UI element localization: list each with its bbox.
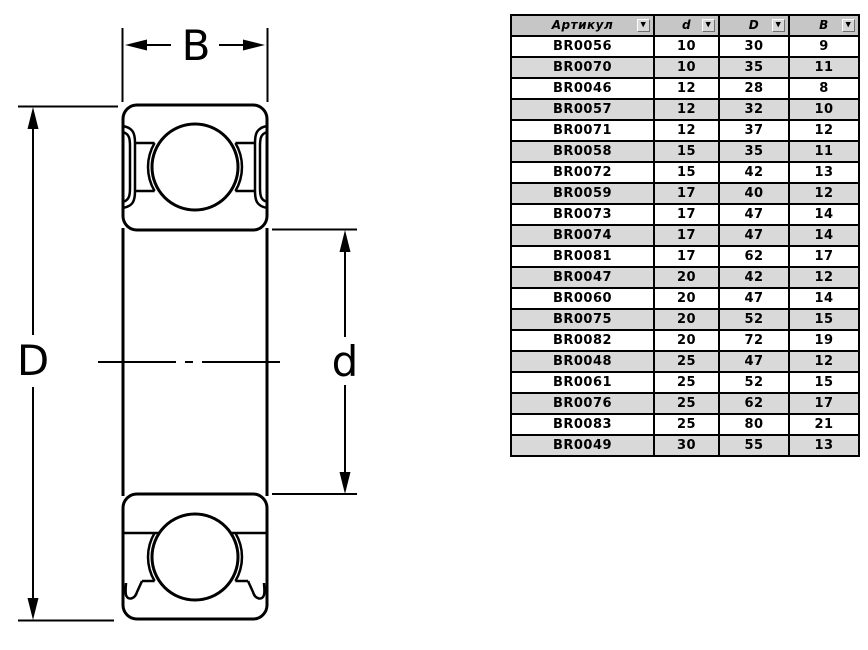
cell-d: 17 <box>654 183 719 204</box>
table-row: BR0074 17 47 14 <box>511 225 859 246</box>
dimension-label-D: D <box>17 336 49 385</box>
cell-article: BR0056 <box>511 36 654 57</box>
col-header-article: Артикул ▼ <box>511 15 654 36</box>
cell-d: 20 <box>654 267 719 288</box>
cell-article: BR0046 <box>511 78 654 99</box>
table-row: BR0057 12 32 10 <box>511 99 859 120</box>
col-header-D: D ▼ <box>719 15 789 36</box>
col-header-D-label: D <box>749 18 759 32</box>
cell-d: 10 <box>654 36 719 57</box>
cell-D: 52 <box>719 372 789 393</box>
cell-B: 21 <box>789 414 859 435</box>
cell-d: 25 <box>654 393 719 414</box>
cell-article: BR0049 <box>511 435 654 456</box>
table-row: BR0060 20 47 14 <box>511 288 859 309</box>
cell-article: BR0076 <box>511 393 654 414</box>
dimension-label-d: d <box>332 337 359 386</box>
cell-d: 17 <box>654 246 719 267</box>
table-row: BR0073 17 47 14 <box>511 204 859 225</box>
cell-d: 15 <box>654 162 719 183</box>
cell-d: 15 <box>654 141 719 162</box>
cell-B: 17 <box>789 246 859 267</box>
cell-D: 35 <box>719 57 789 78</box>
arrow-right-icon <box>243 40 265 51</box>
ball-top <box>152 124 238 210</box>
cell-B: 13 <box>789 435 859 456</box>
col-header-article-label: Артикул <box>552 18 614 32</box>
cell-d: 20 <box>654 288 719 309</box>
arrow-up-icon <box>340 230 351 252</box>
ball-bottom <box>152 514 238 600</box>
cell-D: 28 <box>719 78 789 99</box>
cell-D: 47 <box>719 351 789 372</box>
table-row: BR0072 15 42 13 <box>511 162 859 183</box>
dimension-d: d <box>272 230 358 495</box>
filter-button-B[interactable]: ▼ <box>842 19 855 32</box>
table-row: BR0070 10 35 11 <box>511 57 859 78</box>
table-row: BR0056 10 30 9 <box>511 36 859 57</box>
cell-article: BR0082 <box>511 330 654 351</box>
cell-D: 40 <box>719 183 789 204</box>
cell-article: BR0061 <box>511 372 654 393</box>
cell-d: 20 <box>654 309 719 330</box>
col-header-d-label: d <box>682 18 691 32</box>
cell-B: 17 <box>789 393 859 414</box>
table-row: BR0059 17 40 12 <box>511 183 859 204</box>
cell-d: 17 <box>654 225 719 246</box>
filter-button-d[interactable]: ▼ <box>702 19 715 32</box>
cell-D: 62 <box>719 246 789 267</box>
cell-D: 55 <box>719 435 789 456</box>
chevron-down-icon: ▼ <box>641 22 647 29</box>
cell-d: 12 <box>654 78 719 99</box>
cell-article: BR0081 <box>511 246 654 267</box>
cell-article: BR0059 <box>511 183 654 204</box>
cell-B: 14 <box>789 204 859 225</box>
arrow-up-icon <box>28 107 39 129</box>
chevron-down-icon: ▼ <box>776 22 782 29</box>
bearing-cross-section-bottom <box>123 494 267 619</box>
cell-d: 10 <box>654 57 719 78</box>
cell-article: BR0070 <box>511 57 654 78</box>
arrow-down-icon <box>28 598 39 620</box>
cell-article: BR0083 <box>511 414 654 435</box>
cell-article: BR0072 <box>511 162 654 183</box>
cell-B: 12 <box>789 120 859 141</box>
col-header-B-label: B <box>819 18 829 32</box>
arrow-left-icon <box>125 40 147 51</box>
cell-D: 37 <box>719 120 789 141</box>
table-header-row: Артикул ▼ d ▼ D ▼ B ▼ <box>511 15 859 36</box>
table-row: BR0048 25 47 12 <box>511 351 859 372</box>
cell-article: BR0074 <box>511 225 654 246</box>
cell-B: 15 <box>789 372 859 393</box>
cell-D: 35 <box>719 141 789 162</box>
table-row: BR0049 30 55 13 <box>511 435 859 456</box>
table-row: BR0081 17 62 17 <box>511 246 859 267</box>
col-header-B: B ▼ <box>789 15 859 36</box>
cell-D: 42 <box>719 162 789 183</box>
cell-B: 12 <box>789 267 859 288</box>
cell-d: 12 <box>654 120 719 141</box>
cell-D: 32 <box>719 99 789 120</box>
dimension-label-B: B <box>182 21 211 70</box>
cell-B: 10 <box>789 99 859 120</box>
cell-B: 15 <box>789 309 859 330</box>
cell-d: 12 <box>654 99 719 120</box>
table-row: BR0071 12 37 12 <box>511 120 859 141</box>
cell-article: BR0057 <box>511 99 654 120</box>
cell-article: BR0073 <box>511 204 654 225</box>
cell-B: 14 <box>789 225 859 246</box>
cell-article: BR0048 <box>511 351 654 372</box>
dimension-D: D <box>17 107 118 621</box>
cell-D: 47 <box>719 225 789 246</box>
cell-D: 72 <box>719 330 789 351</box>
filter-button-D[interactable]: ▼ <box>772 19 785 32</box>
cell-d: 25 <box>654 351 719 372</box>
cell-D: 80 <box>719 414 789 435</box>
cell-B: 12 <box>789 183 859 204</box>
table-row: BR0047 20 42 12 <box>511 267 859 288</box>
cell-d: 25 <box>654 372 719 393</box>
cell-d: 17 <box>654 204 719 225</box>
bearing-cross-section-top <box>123 105 267 230</box>
cell-B: 12 <box>789 351 859 372</box>
cell-D: 52 <box>719 309 789 330</box>
cell-d: 30 <box>654 435 719 456</box>
bearing-table: Артикул ▼ d ▼ D ▼ B ▼ BR0056 10 30 <box>510 14 860 457</box>
table-body: BR0056 10 30 9 BR0070 10 35 11 BR0046 12… <box>511 36 859 456</box>
bearing-spec-table: Артикул ▼ d ▼ D ▼ B ▼ BR0056 10 30 <box>510 14 860 457</box>
cell-D: 30 <box>719 36 789 57</box>
table-row: BR0061 25 52 15 <box>511 372 859 393</box>
cell-B: 8 <box>789 78 859 99</box>
table-row: BR0058 15 35 11 <box>511 141 859 162</box>
cell-B: 19 <box>789 330 859 351</box>
cell-D: 42 <box>719 267 789 288</box>
cell-B: 11 <box>789 57 859 78</box>
chevron-down-icon: ▼ <box>706 22 712 29</box>
filter-button-article[interactable]: ▼ <box>637 19 650 32</box>
cell-article: BR0075 <box>511 309 654 330</box>
bearing-drawing: B D d <box>0 0 420 650</box>
cell-B: 9 <box>789 36 859 57</box>
chevron-down-icon: ▼ <box>846 22 852 29</box>
table-row: BR0046 12 28 8 <box>511 78 859 99</box>
dimension-B: B <box>123 21 268 102</box>
cell-d: 25 <box>654 414 719 435</box>
cell-D: 47 <box>719 204 789 225</box>
col-header-d: d ▼ <box>654 15 719 36</box>
cell-D: 47 <box>719 288 789 309</box>
cell-D: 62 <box>719 393 789 414</box>
arrow-down-icon <box>340 472 351 494</box>
cell-article: BR0071 <box>511 120 654 141</box>
cell-article: BR0060 <box>511 288 654 309</box>
cell-d: 20 <box>654 330 719 351</box>
cell-article: BR0047 <box>511 267 654 288</box>
table-row: BR0083 25 80 21 <box>511 414 859 435</box>
cell-B: 14 <box>789 288 859 309</box>
table-row: BR0082 20 72 19 <box>511 330 859 351</box>
table-row: BR0075 20 52 15 <box>511 309 859 330</box>
cell-article: BR0058 <box>511 141 654 162</box>
table-row: BR0076 25 62 17 <box>511 393 859 414</box>
cell-B: 11 <box>789 141 859 162</box>
cell-B: 13 <box>789 162 859 183</box>
